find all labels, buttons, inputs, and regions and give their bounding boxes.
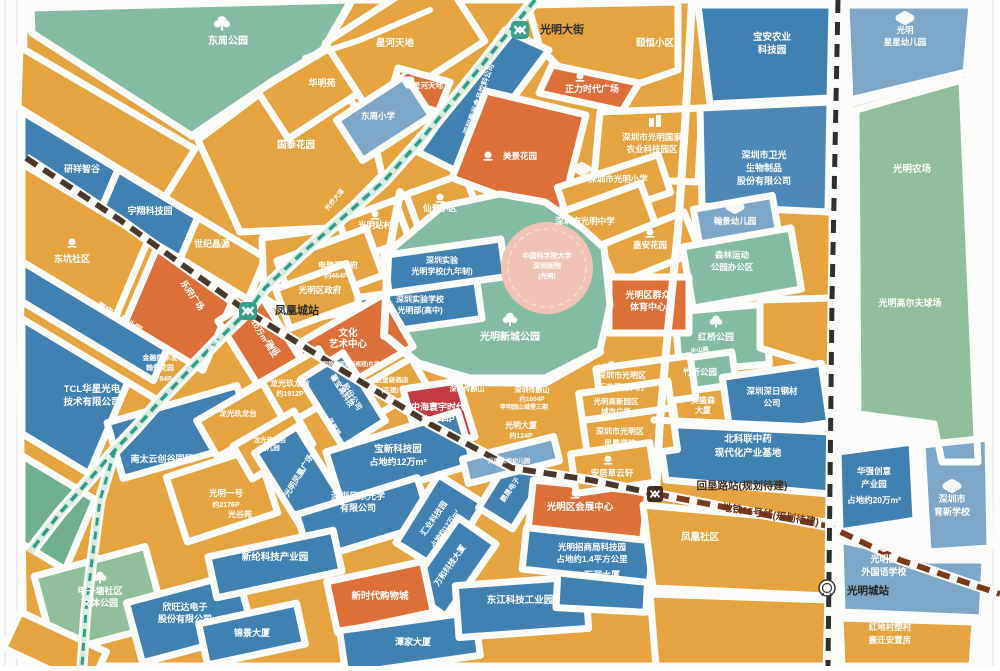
svg-text:光明一号: 光明一号 xyxy=(208,488,244,498)
svg-text:北科联中药: 北科联中药 xyxy=(724,433,772,445)
svg-text:光谷苑: 光谷苑 xyxy=(227,509,252,519)
svg-text:凤凰学校: 凤凰学校 xyxy=(604,438,637,448)
svg-text:股份有限公司: 股份有限公司 xyxy=(158,613,212,624)
svg-text:颐恒小区: 颐恒小区 xyxy=(636,37,675,49)
svg-text:万洞大厦: 万洞大厦 xyxy=(583,569,621,580)
svg-text:世纪晶源: 世纪晶源 xyxy=(194,238,230,249)
svg-text:光明区政府: 光明区政府 xyxy=(298,285,342,295)
svg-text:李明园山城堡三期: 李明园山城堡三期 xyxy=(499,403,548,411)
svg-text:星河天地: 星河天地 xyxy=(413,80,443,90)
svg-text:(光明): (光明) xyxy=(538,271,555,280)
svg-text:中国科学院大学: 中国科学院大学 xyxy=(523,251,572,260)
svg-text:东周小学: 东周小学 xyxy=(361,111,396,121)
svg-text:深坊传麒山: 深坊传麒山 xyxy=(450,384,485,393)
svg-text:光明高尔夫球场: 光明高尔夫球场 xyxy=(877,297,941,308)
svg-text:现代化产业基地: 现代化产业基地 xyxy=(715,447,782,459)
svg-text:深圳实验学校: 深圳实验学校 xyxy=(396,294,445,304)
svg-text:光明大厦: 光明大厦 xyxy=(504,420,538,430)
svg-text:艺术中心: 艺术中心 xyxy=(329,338,368,350)
svg-text:深圳市: 深圳市 xyxy=(938,493,965,504)
svg-text:约464P: 约464P xyxy=(324,271,348,280)
svg-text:深圳市光明国家: 深圳市光明国家 xyxy=(622,132,682,142)
svg-text:约2176P: 约2176P xyxy=(212,500,240,509)
svg-text:深铁光明城际枢纽(在建): 深铁光明城际枢纽(在建) xyxy=(323,360,382,368)
svg-text:约784P: 约784P xyxy=(148,374,172,383)
svg-text:红桥公园: 红桥公园 xyxy=(698,331,734,342)
svg-text:深圳传麒山: 深圳传麒山 xyxy=(515,385,550,394)
svg-text:中海寰宇时代: 中海寰宇时代 xyxy=(411,401,465,412)
svg-text:公园办公区: 公园办公区 xyxy=(711,262,754,272)
svg-text:翰儒花园: 翰儒花园 xyxy=(146,363,174,372)
svg-text:龙光玖龙台: 龙光玖龙台 xyxy=(269,378,310,388)
svg-text:正力时代广场: 正力时代广场 xyxy=(565,83,619,94)
svg-text:生物制品: 生物制品 xyxy=(746,162,782,173)
svg-text:光明大地幼儿园: 光明大地幼儿园 xyxy=(487,457,530,465)
svg-text:光明城站: 光明城站 xyxy=(846,584,889,597)
svg-text:仙景小区: 仙景小区 xyxy=(423,203,458,213)
svg-text:光明农场: 光明农场 xyxy=(892,163,932,175)
svg-text:深圳医院: 深圳医院 xyxy=(533,261,561,270)
svg-text:文化: 文化 xyxy=(337,327,358,339)
svg-text:占地约1.4平方公里: 占地约1.4平方公里 xyxy=(556,554,628,564)
svg-text:农业科技园区: 农业科技园区 xyxy=(625,144,678,154)
svg-text:TCL华星光电: TCL华星光电 xyxy=(64,383,121,395)
svg-text:体育中心: 体育中心 xyxy=(630,301,666,312)
svg-text:光明区会展中心: 光明区会展中心 xyxy=(546,501,614,513)
svg-text:约1604P: 约1604P xyxy=(519,394,545,403)
svg-text:大厦: 大厦 xyxy=(695,405,712,415)
svg-text:龙光玖龙台: 龙光玖龙台 xyxy=(219,408,257,418)
svg-text:光明部(高中): 光明部(高中) xyxy=(396,305,443,315)
svg-text:新时代购物城: 新时代购物城 xyxy=(351,590,409,602)
svg-text:宝安农业: 宝安农业 xyxy=(753,31,792,43)
svg-text:约1912P: 约1912P xyxy=(276,389,304,398)
svg-text:南太云创谷园区: 南太云创谷园区 xyxy=(130,453,193,464)
svg-text:龙光玖龙台: 龙光玖龙台 xyxy=(253,435,287,444)
svg-text:红地村塑村: 红地村塑村 xyxy=(869,622,912,632)
svg-text:凤凰社区: 凤凰社区 xyxy=(681,531,720,543)
svg-text:幼儿园: 幼儿园 xyxy=(260,443,280,452)
svg-text:翰景幼儿园: 翰景幼儿园 xyxy=(714,216,757,226)
svg-text:(在建): (在建) xyxy=(381,385,398,394)
svg-text:回垦路站(规划待建): 回垦路站(规划待建) xyxy=(697,479,788,492)
svg-text:深圳深日钢材: 深圳深日钢材 xyxy=(746,386,798,396)
svg-text:科技园: 科技园 xyxy=(758,44,787,56)
svg-text:星河天地: 星河天地 xyxy=(376,37,415,49)
svg-text:美景花园: 美景花园 xyxy=(503,151,537,161)
svg-text:国泰花园: 国泰花园 xyxy=(277,139,315,151)
svg-text:产业园: 产业园 xyxy=(861,479,887,489)
svg-text:外国语学校: 外国语学校 xyxy=(860,566,907,577)
svg-text:潭家大厦: 潭家大厦 xyxy=(395,636,432,647)
svg-text:凤凰城站: 凤凰城站 xyxy=(275,303,319,317)
svg-text:技术有限公司: 技术有限公司 xyxy=(63,396,120,408)
svg-text:光明区: 光明区 xyxy=(869,553,897,564)
svg-text:竹昕公园: 竹昕公园 xyxy=(682,367,717,377)
svg-text:深圳实验: 深圳实验 xyxy=(426,255,459,265)
svg-text:五星级酒店: 五星级酒店 xyxy=(376,375,409,384)
svg-text:深圳市光明区: 深圳市光明区 xyxy=(596,426,644,436)
svg-text:电建洞明府: 电建洞明府 xyxy=(318,260,358,270)
svg-text:光明招商局科技园: 光明招商局科技园 xyxy=(557,542,626,552)
svg-text:欣旺达电子: 欣旺达电子 xyxy=(162,601,207,612)
svg-text:占地约12万m²: 占地约12万m² xyxy=(369,456,426,467)
svg-text:深圳市光明区: 深圳市光明区 xyxy=(598,370,646,380)
svg-text:东江科技工业园: 东江科技工业园 xyxy=(487,594,554,606)
svg-text:光明高新园区: 光明高新园区 xyxy=(593,396,639,406)
svg-text:深圳市卫光: 深圳市卫光 xyxy=(741,149,786,160)
svg-text:深圳市光明小学: 深圳市光明小学 xyxy=(588,174,648,184)
svg-text:光明大街: 光明大街 xyxy=(539,22,584,36)
svg-text:东周公园: 东周公园 xyxy=(208,34,248,47)
svg-text:约124P: 约124P xyxy=(509,431,533,440)
svg-text:育新学校: 育新学校 xyxy=(934,506,971,517)
svg-text:森林运动: 森林运动 xyxy=(715,250,750,260)
svg-text:有限公司: 有限公司 xyxy=(340,502,376,513)
svg-text:宝新科技园: 宝新科技园 xyxy=(374,443,422,455)
svg-text:深圳市光明中学: 深圳市光明中学 xyxy=(555,216,615,226)
svg-text:公司: 公司 xyxy=(763,398,780,408)
svg-text:光明区群众: 光明区群众 xyxy=(624,289,671,300)
svg-text:文体公园: 文体公园 xyxy=(81,597,118,608)
svg-text:城市广场: 城市广场 xyxy=(601,406,631,416)
svg-text:光明新城公园: 光明新城公园 xyxy=(479,330,540,343)
svg-text:宇翔科技园: 宇翔科技园 xyxy=(127,205,172,216)
svg-text:新纶科技产业园: 新纶科技产业园 xyxy=(242,551,309,563)
svg-text:行政服务大厅: 行政服务大厅 xyxy=(597,382,646,392)
svg-text:美盛森: 美盛森 xyxy=(691,395,716,405)
svg-text:甲子塘社区: 甲子塘社区 xyxy=(77,585,122,596)
svg-text:华强创意: 华强创意 xyxy=(857,466,892,476)
svg-text:搬迁安置房: 搬迁安置房 xyxy=(869,635,912,645)
svg-text:占地约20万m²: 占地约20万m² xyxy=(847,495,901,505)
svg-text:华明苑: 华明苑 xyxy=(308,77,335,88)
svg-text:星星幼儿园: 星星幼儿园 xyxy=(884,37,927,47)
svg-text:深圳日东光学: 深圳日东光学 xyxy=(331,490,385,501)
svg-text:研祥智谷: 研祥智谷 xyxy=(64,163,101,174)
svg-text:光明站村: 光明站村 xyxy=(357,220,393,230)
svg-text:安居草云轩: 安居草云轩 xyxy=(591,468,634,478)
svg-text:光明: 光明 xyxy=(895,25,914,35)
svg-text:股份有限公司: 股份有限公司 xyxy=(737,175,791,186)
svg-text:锦景大厦: 锦景大厦 xyxy=(234,627,271,638)
svg-text:光明学校(九年制): 光明学校(九年制) xyxy=(410,266,473,276)
svg-text:嘉安花园: 嘉安花园 xyxy=(632,240,667,250)
svg-text:东坑社区: 东坑社区 xyxy=(54,253,90,264)
svg-text:约1544P: 约1544P xyxy=(421,414,454,424)
svg-text:金融街华发: 金融街华发 xyxy=(142,353,179,362)
